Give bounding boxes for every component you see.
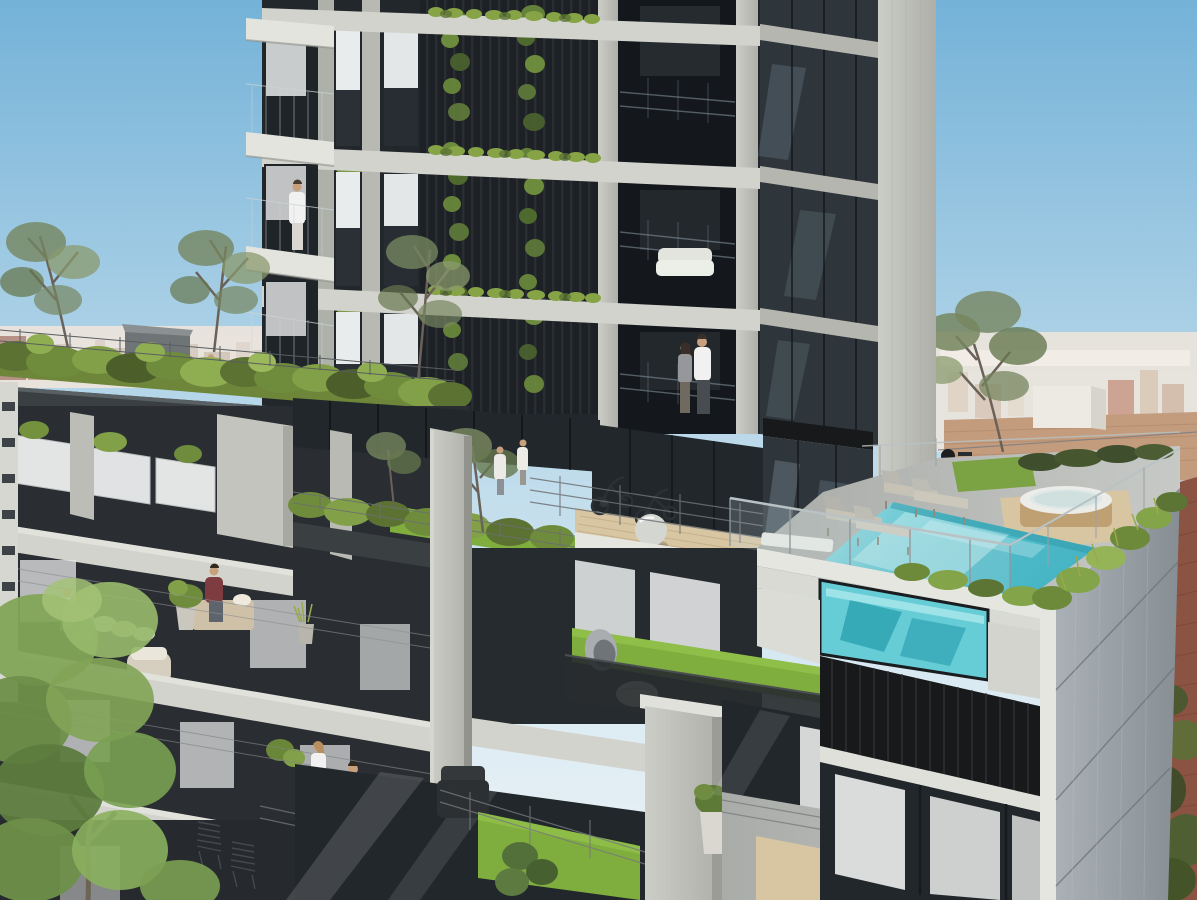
white-sofa bbox=[656, 248, 714, 276]
rendering-canvas bbox=[0, 0, 1197, 900]
tower-side-pier bbox=[878, 0, 936, 500]
architectural-rendering: Photorealistic daytime rendering of a mo… bbox=[0, 0, 1197, 900]
tower-column bbox=[736, 0, 758, 434]
tower-side-glazing bbox=[758, 0, 878, 446]
recessed-balconies bbox=[618, 0, 736, 434]
tower-column bbox=[598, 0, 618, 430]
louver-facade bbox=[420, 0, 600, 414]
white-rooftop-box bbox=[1033, 386, 1106, 430]
